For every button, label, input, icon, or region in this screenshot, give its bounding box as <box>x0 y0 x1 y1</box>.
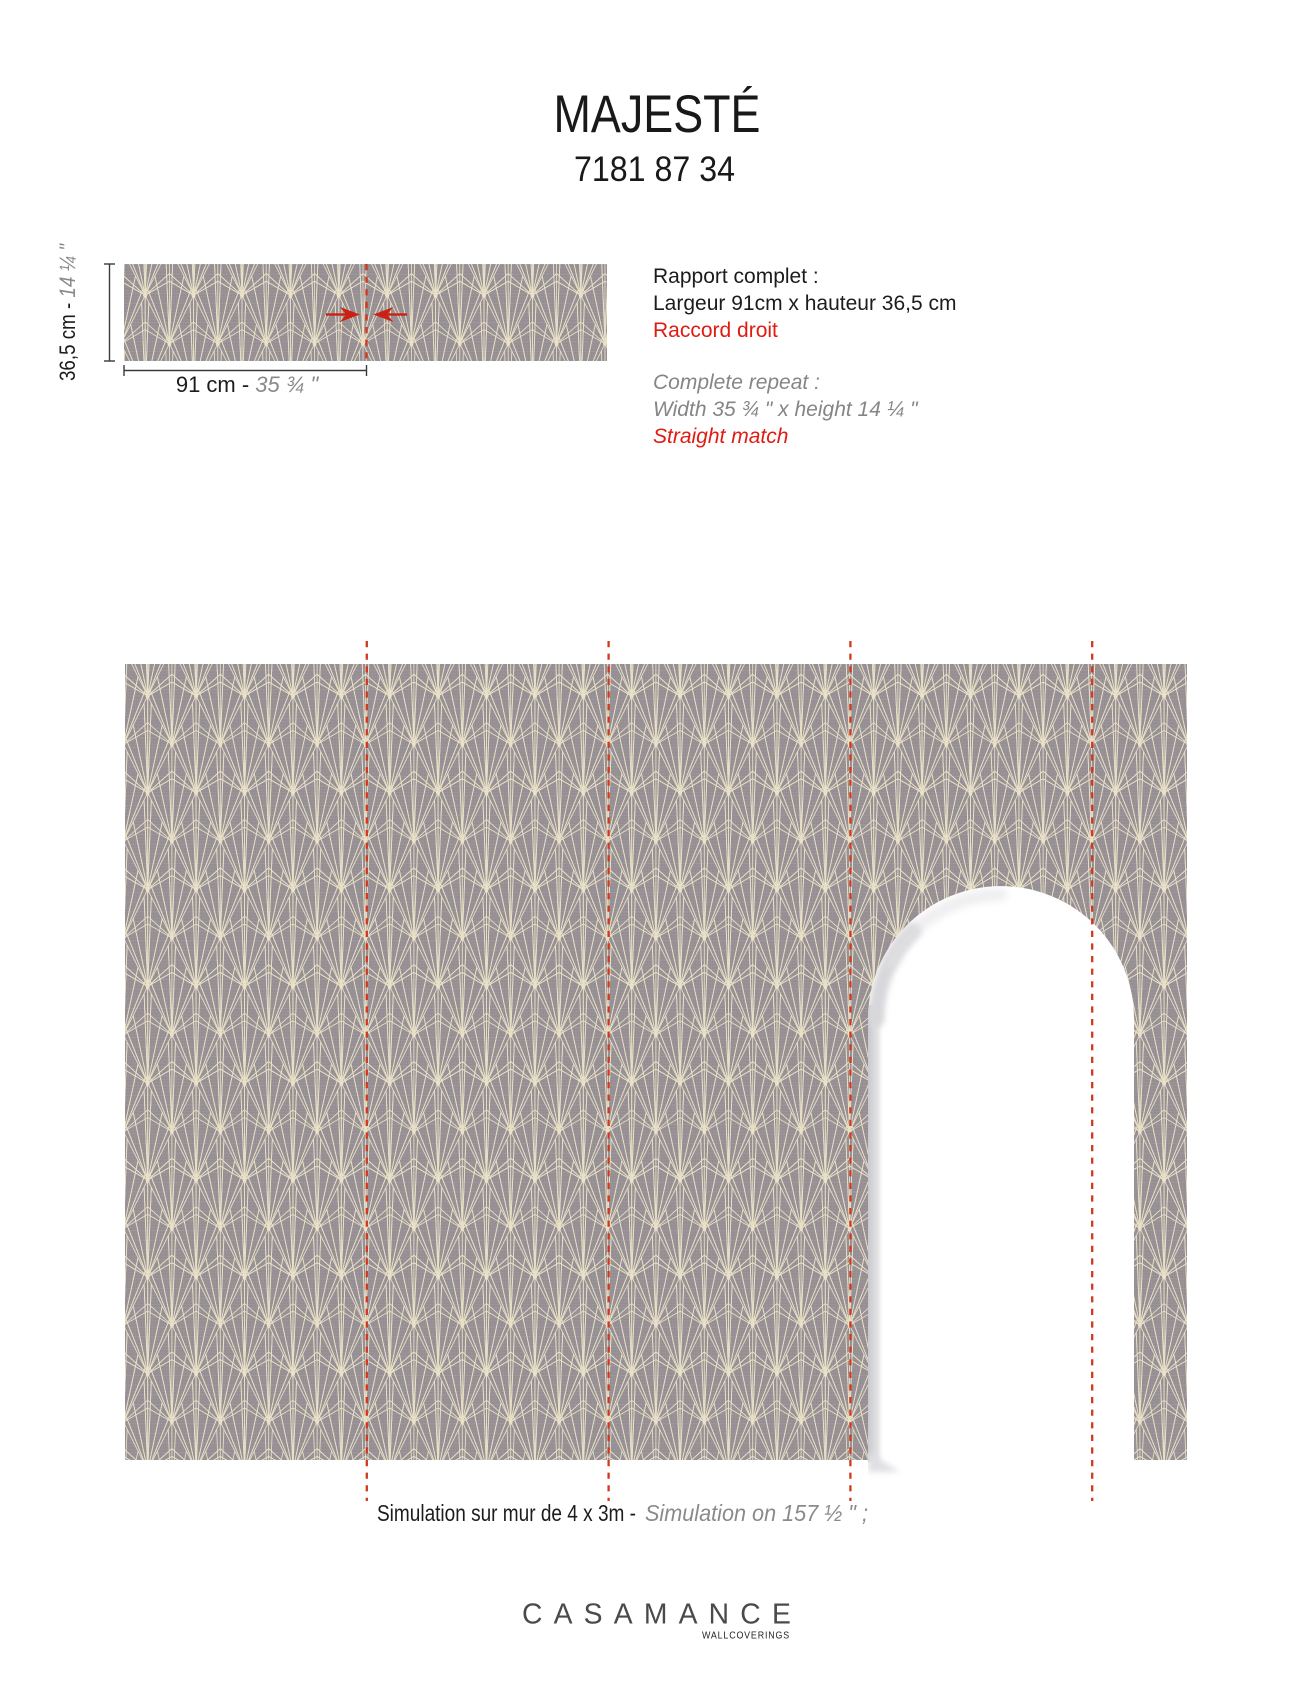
svg-text:Complete repeat :: Complete repeat : <box>653 371 820 394</box>
svg-text:Width 35 ¾ " x height 14 ¼ ": Width 35 ¾ " x height 14 ¼ " <box>653 398 919 421</box>
svg-text:Simulation on 157 ½ " ;: Simulation on 157 ½ " ; <box>645 1500 868 1526</box>
svg-text:Raccord droit: Raccord droit <box>653 319 778 342</box>
svg-text:7181 87 34: 7181 87 34 <box>574 150 735 189</box>
svg-text:CASAMANCE: CASAMANCE <box>522 1598 802 1630</box>
svg-text:MAJESTÉ: MAJESTÉ <box>554 85 761 144</box>
svg-text:Largeur 91cm x hauteur 36,5 cm: Largeur 91cm x hauteur 36,5 cm <box>653 292 957 315</box>
svg-text:91 cm - 35 ¾ ": 91 cm - 35 ¾ " <box>176 372 320 397</box>
svg-text:Simulation sur mur de 4 x 3m -: Simulation sur mur de 4 x 3m - <box>377 1500 636 1526</box>
svg-text:Straight match: Straight match <box>653 425 788 448</box>
svg-text:Rapport complet :: Rapport complet : <box>653 265 819 288</box>
svg-text:36,5 cm - 14 ¼ ": 36,5 cm - 14 ¼ " <box>55 243 80 381</box>
svg-text:WALLCOVERINGS: WALLCOVERINGS <box>702 1630 790 1642</box>
